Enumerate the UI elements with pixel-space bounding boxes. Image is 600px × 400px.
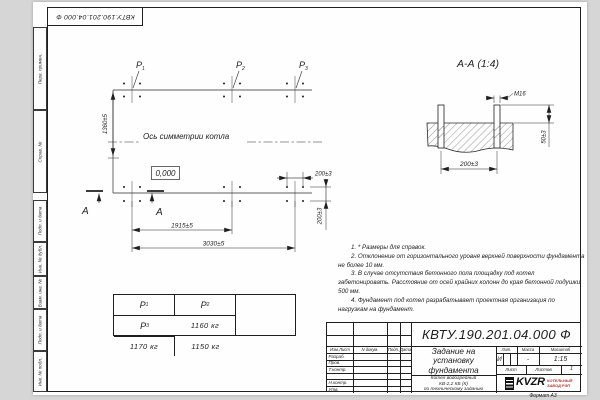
load-table-value-p1: 1160 кг xyxy=(175,316,236,335)
kvzr-logo-text: KVZR xyxy=(516,376,545,388)
dim-1915: 1915±5 xyxy=(171,223,193,230)
note-1: 1. * Размеры для справок. xyxy=(338,244,586,253)
section-letter-right: А xyxy=(155,207,163,218)
col-n-dokum: N докум. xyxy=(353,347,387,352)
load-table-header-p1: P1 xyxy=(114,295,175,316)
dim-200-vertical: 200±3 xyxy=(318,207,324,225)
load-label-p1: P1 xyxy=(136,60,145,72)
lit-label: Лит. xyxy=(496,347,517,352)
product-name: Котел водогрейный КВ-2,2 КБ (К) по техни… xyxy=(411,376,496,393)
section-title: А-А (1:4) xyxy=(456,58,499,70)
kvzr-logo-icon xyxy=(505,377,514,390)
column-centerlines xyxy=(132,76,295,207)
symmetry-axis-label: Ось симметрии котла xyxy=(143,132,230,141)
scale-value: 1:15 xyxy=(539,356,582,363)
load-table-header-p3: P3 xyxy=(114,316,175,337)
thread-label-m16: М16 xyxy=(514,92,526,98)
col-data: Дата xyxy=(400,347,411,352)
row-tkontr: Т.контр. xyxy=(329,367,347,372)
load-table-value-p2: 1170 кг xyxy=(114,337,175,356)
sheets-value: 1 xyxy=(561,366,582,372)
dim-1360: 1360±5 xyxy=(103,113,109,134)
row-utv: Утв. xyxy=(329,387,339,392)
plan-extension-lines xyxy=(108,158,331,252)
scale-label: Масштаб xyxy=(539,347,582,352)
format-note: Формат А3 xyxy=(505,393,581,399)
plan-outline xyxy=(113,90,312,193)
doc-title: Задание на установку фундамента xyxy=(411,347,496,375)
load-callout-leaders xyxy=(133,71,302,88)
note-2: 2. Отклонение от горизонтального уровня … xyxy=(338,253,586,271)
load-label-p3: P3 xyxy=(299,60,308,72)
row-nkontr: Н.контр. xyxy=(329,380,348,385)
row-razrab: Разраб. xyxy=(329,354,345,359)
notes-block: 1. * Размеры для справок. 2. Отклонение … xyxy=(338,244,586,314)
kvzr-logo-caption: КОТЕЛЬНЫЙ ЗАВОД РЭП xyxy=(547,379,572,388)
mass-label: Масса xyxy=(517,347,539,352)
sheet-label: Лист xyxy=(496,367,526,372)
row-prov: Пров. xyxy=(329,360,341,365)
load-label-p2: P2 xyxy=(236,60,245,72)
note-3: 3. В случае отсутствия бетонного пола пл… xyxy=(338,270,586,296)
mass-value: - xyxy=(517,356,539,363)
sheets-label: Листов xyxy=(526,367,561,372)
dim-50: 50±3 xyxy=(542,130,548,144)
dim-3030: 3030±5 xyxy=(203,241,225,248)
section-letter-left: А xyxy=(81,206,89,217)
col-izm-list: Изм.Лист xyxy=(327,347,353,352)
col-podp: Подп. xyxy=(387,347,400,352)
lit-value: И xyxy=(496,356,503,363)
plan-dimension-lines xyxy=(113,92,326,248)
load-table-header-p2: P2 xyxy=(175,295,236,316)
load-table: P1 P2 P3 1160 кг 1170 кг 1150 кг xyxy=(113,294,296,336)
note-4: 4. Фундамент под котел разрабатывает про… xyxy=(338,297,586,315)
elevation-label: 0,000 xyxy=(155,169,176,178)
dim-200-section: 200±3 xyxy=(459,161,478,168)
doc-number: КВТУ.190.201.04.000 Ф xyxy=(411,323,582,346)
title-block: КВТУ.190.201.04.000 Ф Изм.Лист N докум. … xyxy=(326,322,581,392)
dim-200-horizontal: 200±3 xyxy=(314,172,332,178)
load-table-value-p3: 1150 кг xyxy=(175,337,236,356)
